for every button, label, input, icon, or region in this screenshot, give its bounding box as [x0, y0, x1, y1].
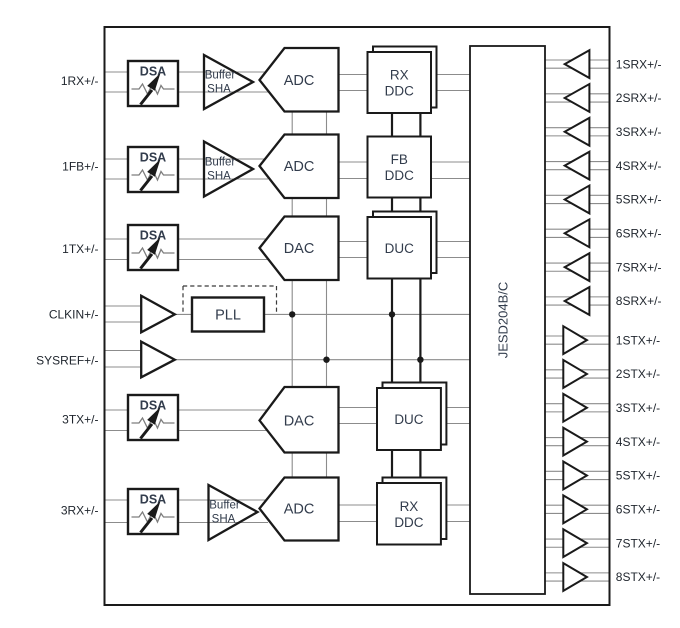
svg-text:DSA: DSA	[140, 229, 166, 243]
svg-text:5STX+/-: 5STX+/-	[616, 469, 660, 483]
svg-text:1TX+/-: 1TX+/-	[62, 242, 98, 256]
svg-text:CLKIN+/-: CLKIN+/-	[49, 308, 99, 322]
svg-text:RX: RX	[390, 68, 409, 83]
svg-text:5SRX+/-: 5SRX+/-	[616, 193, 662, 207]
svg-text:1STX+/-: 1STX+/-	[616, 333, 660, 347]
svg-text:DUC: DUC	[394, 412, 423, 427]
svg-text:2STX+/-: 2STX+/-	[616, 367, 660, 381]
svg-text:ADC: ADC	[284, 502, 315, 518]
svg-text:DDC: DDC	[385, 168, 414, 183]
svg-text:8STX+/-: 8STX+/-	[616, 570, 660, 584]
svg-text:3RX+/-: 3RX+/-	[61, 504, 99, 518]
svg-text:DAC: DAC	[284, 241, 315, 257]
svg-text:7SRX+/-: 7SRX+/-	[616, 260, 662, 274]
svg-text:6SRX+/-: 6SRX+/-	[616, 227, 662, 241]
svg-text:DSA: DSA	[140, 151, 166, 165]
svg-text:1FB+/-: 1FB+/-	[62, 160, 98, 174]
svg-text:DSA: DSA	[140, 399, 166, 413]
svg-text:1SRX+/-: 1SRX+/-	[616, 57, 662, 71]
svg-text:4SRX+/-: 4SRX+/-	[616, 159, 662, 173]
svg-text:Buffer: Buffer	[205, 157, 236, 169]
svg-text:SYSREF+/-: SYSREF+/-	[36, 354, 98, 368]
svg-text:3STX+/-: 3STX+/-	[616, 401, 660, 415]
svg-text:DDC: DDC	[394, 515, 423, 530]
svg-text:DUC: DUC	[385, 241, 414, 256]
svg-text:SHA: SHA	[212, 514, 236, 526]
svg-text:DSA: DSA	[140, 65, 166, 79]
svg-text:6STX+/-: 6STX+/-	[616, 503, 660, 517]
svg-text:4STX+/-: 4STX+/-	[616, 435, 660, 449]
svg-text:PLL: PLL	[215, 307, 241, 323]
svg-text:SHA: SHA	[207, 84, 231, 96]
svg-text:3TX+/-: 3TX+/-	[62, 413, 98, 427]
svg-text:8SRX+/-: 8SRX+/-	[616, 294, 662, 308]
svg-text:DAC: DAC	[284, 413, 315, 429]
svg-text:3SRX+/-: 3SRX+/-	[616, 125, 662, 139]
svg-text:ADC: ADC	[284, 159, 315, 175]
svg-text:1RX+/-: 1RX+/-	[61, 74, 99, 88]
svg-text:JESD204B/C: JESD204B/C	[496, 282, 511, 359]
svg-text:2SRX+/-: 2SRX+/-	[616, 91, 662, 105]
svg-text:Buffer: Buffer	[209, 500, 240, 512]
svg-text:DDC: DDC	[385, 84, 414, 99]
svg-text:Buffer: Buffer	[205, 70, 236, 82]
svg-text:ADC: ADC	[284, 73, 315, 89]
svg-text:FB: FB	[391, 152, 408, 167]
svg-text:DSA: DSA	[140, 493, 166, 507]
svg-text:SHA: SHA	[207, 171, 231, 183]
svg-text:7STX+/-: 7STX+/-	[616, 536, 660, 550]
svg-text:RX: RX	[400, 499, 419, 514]
